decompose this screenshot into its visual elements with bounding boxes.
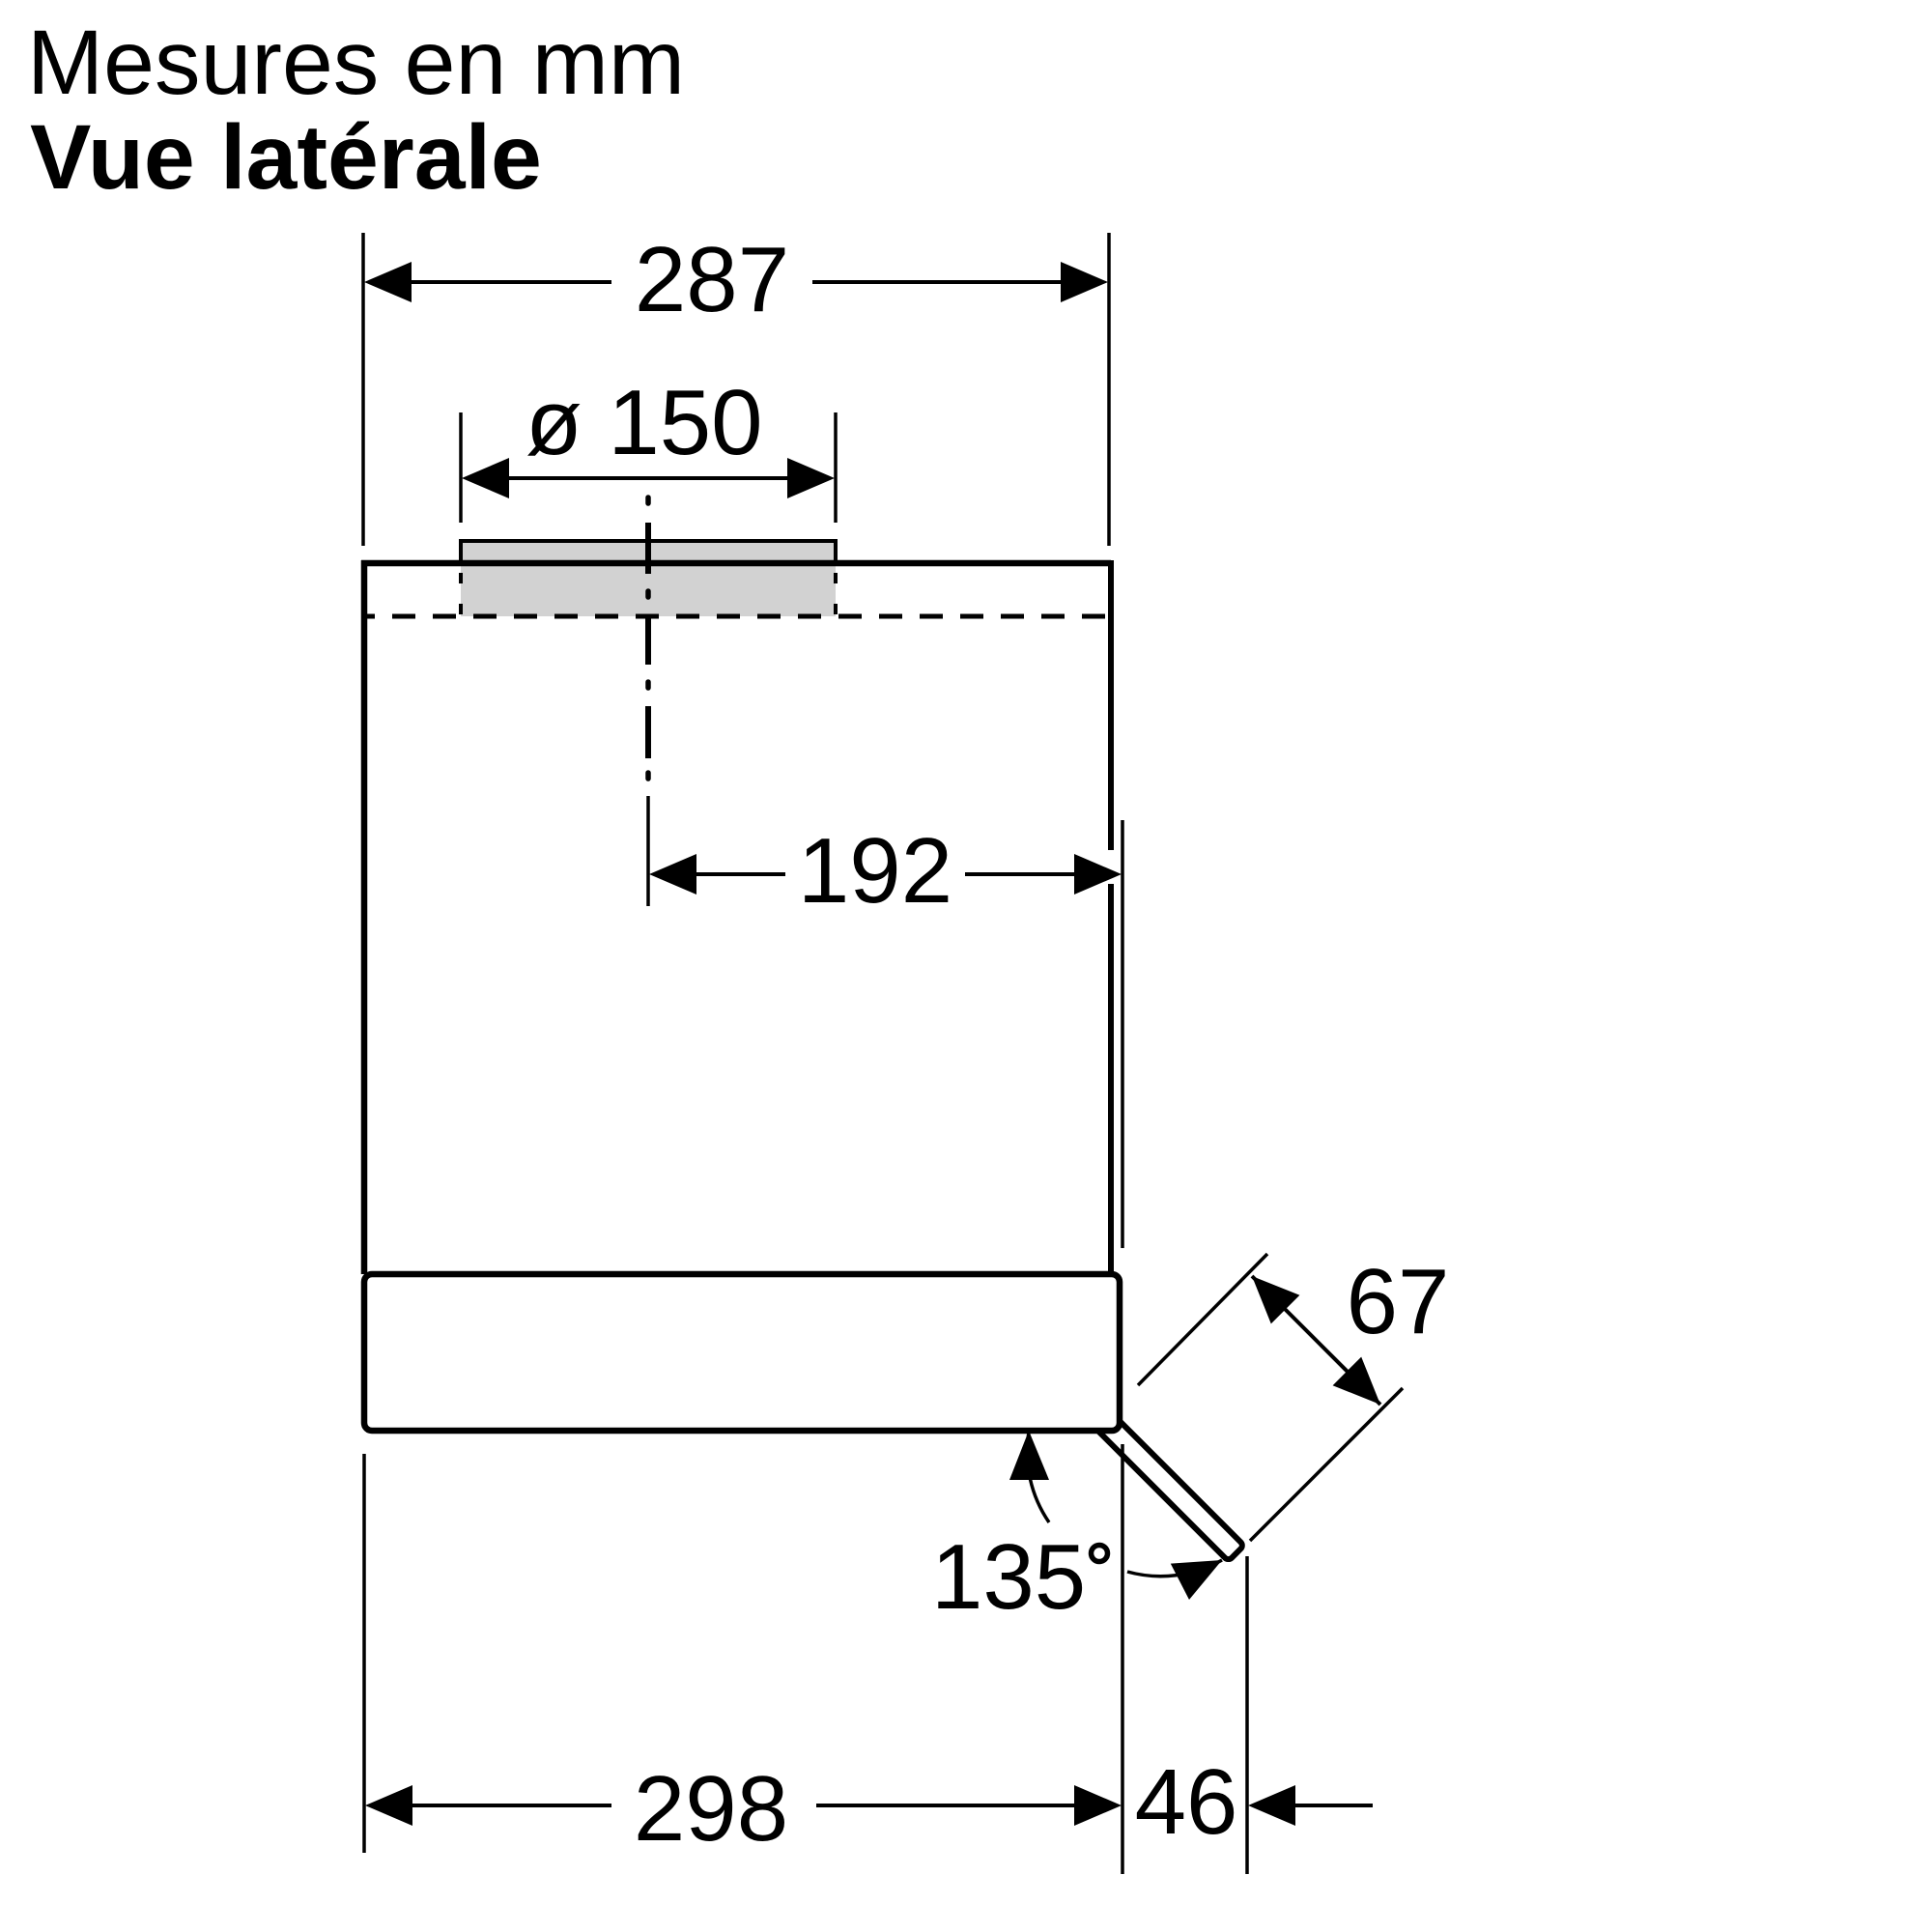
- svg-text:Vue latérale: Vue latérale: [30, 106, 542, 209]
- svg-text:Mesures en mm: Mesures en mm: [27, 12, 685, 114]
- svg-text:135: 135: [931, 1525, 1086, 1629]
- svg-text:287: 287: [635, 228, 789, 331]
- svg-text:67: 67: [1347, 1250, 1450, 1353]
- svg-text:46: 46: [1135, 1750, 1238, 1854]
- svg-text:ø 150: ø 150: [526, 371, 762, 474]
- svg-text:192: 192: [798, 819, 952, 923]
- svg-text:298: 298: [634, 1757, 788, 1861]
